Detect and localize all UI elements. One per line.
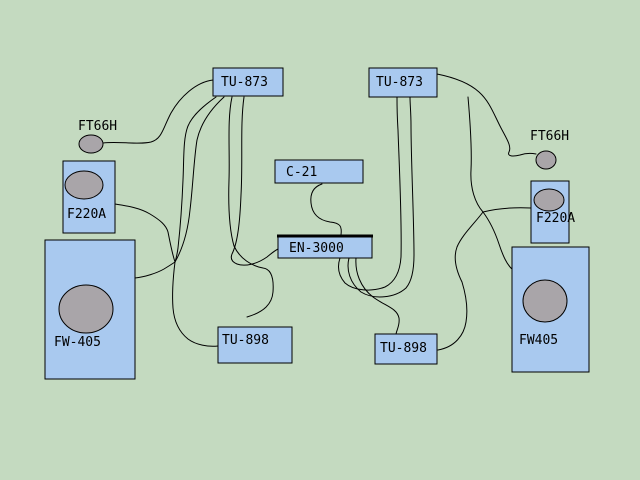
label-ft66h-left: FT66H [78,119,117,134]
label-f220a-left: F220A [67,207,106,222]
label-fw405-right: FW405 [519,333,558,348]
ft66h-right-tweeter [536,151,556,169]
label-f220a-right: F220A [536,211,575,226]
label-fw405-left: FW-405 [54,335,101,350]
ft66h-left-tweeter [79,135,103,153]
label-tu873-right: TU-873 [376,75,423,90]
cable-group [103,74,536,350]
component-group: TU-873 TU-873 C-21 EN-3000 TU-898 TU-898… [45,68,589,379]
fw405-left-woofer-cone [59,285,113,333]
label-ft66h-right: FT66H [530,129,569,144]
diagram-svg: TU-873 TU-873 C-21 EN-3000 TU-898 TU-898… [0,0,640,480]
cable-en3000-tu898R [356,258,399,334]
cable-en3000-tu873R-a [338,97,401,290]
fw405-right-woofer-cone [523,280,567,322]
cable-fw405L-junctionL [135,262,175,278]
f220a-right-driver-cone [534,189,564,211]
label-tu898-right: TU-898 [380,341,427,356]
cable-tu873L-junctionL-a [175,97,216,262]
cable-tu873L-junctionL-b [175,97,224,262]
cable-ft66hL-tu873L [103,80,213,143]
cable-tu873L-en3000 [231,97,278,265]
wiring-diagram-canvas: TU-873 TU-873 C-21 EN-3000 TU-898 TU-898… [0,0,640,480]
label-c21: C-21 [286,165,317,180]
cable-junctionR-tu898R [438,212,483,350]
cable-en3000-tu873R-b [348,97,414,297]
label-tu898-left: TU-898 [222,333,269,348]
f220a-left-driver-cone [65,171,103,199]
cable-junctionL-tu898L [173,262,218,346]
cable-tu873L-loose-end [229,97,273,317]
cable-tu873R-junctionR [468,97,483,212]
label-en3000: EN-3000 [289,241,344,256]
cable-tu873R-ft66hR [437,74,536,156]
cable-c21-en3000 [311,184,341,235]
cable-junctionR-fw405R [483,212,513,270]
label-tu873-left: TU-873 [221,75,268,90]
cable-junctionR-f220aR [483,208,531,212]
